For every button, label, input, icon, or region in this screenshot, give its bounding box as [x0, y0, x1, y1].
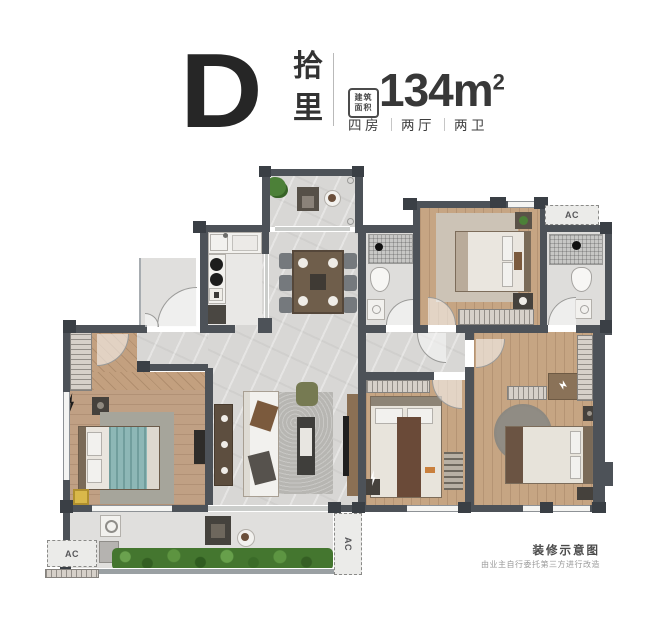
- pier: [60, 500, 73, 513]
- basin-icon: [580, 305, 589, 314]
- shower-head-icon: [375, 243, 383, 251]
- dining-chair: [279, 297, 293, 313]
- wall-segment: [413, 208, 420, 232]
- window-segment: [523, 505, 590, 512]
- pillow: [502, 236, 513, 261]
- dining-chair: [343, 275, 357, 291]
- shelf-item: [221, 467, 228, 474]
- corridor-floor: [366, 332, 465, 372]
- pier: [600, 222, 612, 234]
- bed: [370, 396, 442, 498]
- wardrobe: [458, 309, 534, 325]
- wall-pier-bump: [601, 462, 613, 486]
- bookshelf: [214, 404, 233, 486]
- coffee-cup-icon: [241, 533, 249, 541]
- wall-segment: [366, 325, 386, 333]
- pillow: [570, 456, 581, 479]
- duvet-roll: [147, 427, 159, 489]
- coffee-table: [297, 417, 315, 475]
- master-bed: [78, 426, 160, 490]
- pier: [592, 502, 606, 513]
- wardrobe: [70, 331, 92, 391]
- hedge-plants: [112, 548, 333, 570]
- floor-plan: AC AC AC 装修示意图 由业主自行委托第三方进行改造: [0, 0, 658, 619]
- pier: [352, 166, 364, 177]
- cutting-board: [209, 288, 223, 301]
- wall-segment: [262, 232, 269, 254]
- plant-box: [515, 212, 532, 229]
- coffee-table-tray: [300, 428, 312, 456]
- shelf-item: [221, 441, 228, 448]
- pier: [458, 502, 471, 513]
- pillow: [570, 431, 581, 454]
- dining-chair: [279, 253, 293, 269]
- accent-throw: [425, 467, 435, 473]
- wall-segment: [200, 225, 208, 333]
- ac-platform-bottom-left: AC: [47, 540, 97, 567]
- bed: [455, 231, 531, 292]
- dining-chair: [343, 297, 357, 313]
- caption-title: 装修示意图: [533, 542, 601, 558]
- shower-head-icon: [572, 241, 581, 250]
- porch-console-inset: [302, 196, 314, 208]
- sofa-back: [244, 392, 250, 496]
- window-segment: [508, 201, 536, 208]
- caption-note: 由业主自行委托第三方进行改造: [481, 559, 600, 570]
- ac-label: AC: [565, 210, 579, 220]
- basin-icon: [372, 305, 381, 314]
- wall-segment: [358, 505, 407, 512]
- wall-segment: [358, 232, 366, 505]
- dining-chair: [343, 253, 357, 269]
- pier: [259, 166, 271, 177]
- wall-segment: [144, 364, 208, 371]
- ac-label: AC: [343, 537, 353, 551]
- floorplan-page: D 拾 里 建筑 面积 134m2 四房 两厅 两卫: [0, 0, 658, 619]
- wall-segment: [200, 325, 235, 333]
- shelf-unit: [507, 386, 547, 400]
- ac-platform-hatch: [45, 569, 99, 578]
- pillow: [502, 262, 513, 287]
- coffee-cup-icon: [328, 194, 336, 202]
- wardrobe: [577, 335, 593, 401]
- window-segment: [407, 505, 463, 512]
- ac-platform-bottom-middle: AC: [334, 513, 362, 575]
- pier: [137, 361, 150, 372]
- wall-segment: [70, 325, 147, 333]
- plate-icon: [298, 296, 308, 306]
- washer-door-icon: [105, 520, 118, 533]
- outlet-mark: [347, 177, 354, 184]
- porch-console: [297, 187, 319, 211]
- kitchen-slider: [264, 254, 269, 318]
- window-segment: [63, 392, 70, 480]
- kitchen-tray: [232, 235, 258, 251]
- wall-segment: [463, 505, 523, 512]
- ottoman: [296, 382, 318, 406]
- pier: [540, 502, 553, 513]
- dining-table: [292, 250, 344, 314]
- headboard: [79, 427, 86, 489]
- plate-icon: [298, 258, 308, 268]
- faucet-icon: [223, 233, 228, 238]
- pillow: [87, 432, 102, 456]
- pier: [352, 502, 365, 513]
- shelf-item: [221, 415, 228, 422]
- pier: [600, 320, 612, 333]
- wall-segment: [465, 332, 474, 340]
- console-inset: [211, 524, 225, 538]
- wardrobe: [366, 380, 430, 393]
- sofa-pillow: [250, 400, 279, 432]
- knob-icon: [587, 411, 592, 416]
- outlet-mark: [347, 218, 354, 225]
- ac-platform-top-right: AC: [545, 205, 599, 225]
- balcony-slider: [208, 505, 333, 512]
- bedroom-tv-icon: [194, 430, 205, 464]
- fridge: [208, 305, 226, 324]
- lumbar-pillow: [514, 252, 522, 270]
- plate-icon: [328, 258, 338, 268]
- wall-segment: [358, 372, 434, 380]
- bed-runner: [506, 427, 523, 483]
- dining-chair: [279, 275, 293, 291]
- wall-segment: [355, 169, 363, 232]
- kitchen-sink: [210, 234, 228, 251]
- pier: [403, 198, 417, 210]
- pier: [328, 502, 341, 513]
- balcony-console: [205, 516, 231, 545]
- pillow: [87, 459, 102, 483]
- wall-segment: [262, 169, 363, 176]
- porch-glass-door: [275, 226, 350, 232]
- wall-segment: [413, 232, 420, 333]
- pier: [490, 197, 506, 208]
- knob-icon: [519, 297, 527, 305]
- window-segment: [92, 505, 172, 512]
- headboard: [583, 427, 592, 483]
- wall-segment: [258, 318, 272, 333]
- balcony-railing: [66, 568, 335, 574]
- wall-segment: [200, 225, 270, 232]
- table-runner: [310, 274, 326, 290]
- headboard: [371, 397, 441, 406]
- plate-icon: [328, 296, 338, 306]
- stove-burner-icon: [210, 258, 223, 271]
- bed: [505, 426, 593, 484]
- wall-segment: [205, 368, 213, 505]
- headboard: [524, 232, 530, 291]
- sofa-pillow: [248, 451, 277, 485]
- yellow-stool: [73, 489, 89, 505]
- pier: [63, 320, 76, 333]
- knife-icon: [214, 292, 219, 298]
- teal-duvet: [109, 427, 147, 489]
- nightstand: [577, 487, 594, 500]
- lamp-icon: [97, 402, 104, 409]
- bedside-unit: [513, 293, 533, 309]
- ac-label: AC: [65, 549, 79, 559]
- stove-burner-icon: [210, 273, 223, 286]
- wall-segment: [605, 225, 612, 335]
- tv-icon: [343, 416, 349, 476]
- sofa: [243, 391, 279, 497]
- washing-machine: [100, 515, 121, 537]
- pier: [193, 221, 206, 233]
- duvet-fold: [456, 232, 468, 291]
- wall-segment: [262, 169, 270, 232]
- sink: [575, 299, 592, 319]
- bed-runner: [397, 417, 421, 497]
- sink: [367, 299, 385, 320]
- wall-segment: [465, 367, 474, 505]
- wall-segment: [420, 325, 428, 333]
- striped-rug: [444, 452, 463, 490]
- plant-icon: [519, 216, 528, 225]
